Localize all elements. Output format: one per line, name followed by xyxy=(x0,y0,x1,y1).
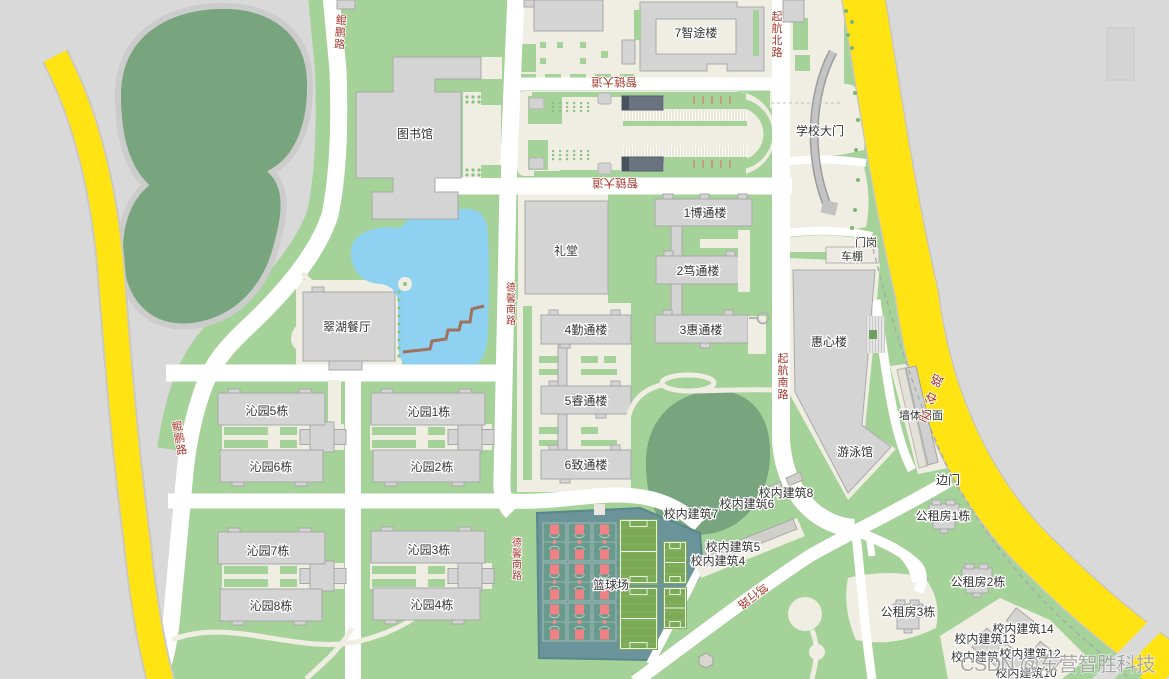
svg-text:北: 北 xyxy=(772,34,783,47)
svg-text:路: 路 xyxy=(512,569,522,582)
svg-text:惠心楼: 惠心楼 xyxy=(811,334,847,349)
svg-text:边门: 边门 xyxy=(936,472,960,487)
svg-text:智链大道: 智链大道 xyxy=(592,176,638,190)
svg-text:航: 航 xyxy=(778,363,789,377)
svg-text:图书馆: 图书馆 xyxy=(397,126,433,141)
svg-text:校内建筑5: 校内建筑5 xyxy=(706,539,761,554)
svg-text:鲲: 鲲 xyxy=(335,13,347,28)
svg-text:航: 航 xyxy=(772,21,783,35)
svg-text:沁园7栋: 沁园7栋 xyxy=(247,543,290,558)
svg-text:校内建筑13: 校内建筑13 xyxy=(954,631,1016,646)
svg-text:起: 起 xyxy=(778,352,789,365)
svg-text:沁园1栋: 沁园1栋 xyxy=(408,404,451,419)
svg-text:南: 南 xyxy=(778,376,789,389)
svg-text:沁园8栋: 沁园8栋 xyxy=(250,598,293,613)
svg-text:4勤通楼: 4勤通楼 xyxy=(565,322,608,337)
svg-text:沁园3栋: 沁园3栋 xyxy=(408,542,451,557)
svg-text:游泳馆: 游泳馆 xyxy=(837,444,873,459)
svg-text:公租房2栋: 公租房2栋 xyxy=(951,574,1006,589)
svg-text:1博通楼: 1博通楼 xyxy=(684,205,727,220)
svg-text:南: 南 xyxy=(506,303,516,316)
svg-text:篮球场: 篮球场 xyxy=(593,577,629,592)
svg-text:馨: 馨 xyxy=(512,547,522,560)
svg-text:7智途楼: 7智途楼 xyxy=(675,25,718,40)
svg-text:南: 南 xyxy=(512,558,522,571)
svg-text:翠湖餐厅: 翠湖餐厅 xyxy=(323,319,371,334)
svg-text:馨: 馨 xyxy=(506,292,516,305)
svg-text:鹏: 鹏 xyxy=(334,26,346,40)
svg-text:路: 路 xyxy=(334,38,346,52)
svg-text:路: 路 xyxy=(175,443,188,458)
svg-text:车棚: 车棚 xyxy=(841,249,863,263)
svg-text:沁园6栋: 沁园6栋 xyxy=(250,459,293,474)
svg-text:路: 路 xyxy=(772,46,783,59)
svg-text:智链大道: 智链大道 xyxy=(591,75,637,89)
svg-text:礼堂: 礼堂 xyxy=(554,243,578,258)
svg-text:沁园2栋: 沁园2栋 xyxy=(411,459,454,474)
svg-text:起: 起 xyxy=(772,10,783,23)
svg-text:沁园5栋: 沁园5栋 xyxy=(246,403,289,418)
svg-text:校内建筑7: 校内建筑7 xyxy=(664,506,719,521)
svg-text:学校大门: 学校大门 xyxy=(796,123,844,138)
svg-text:6致通楼: 6致通楼 xyxy=(565,457,608,472)
svg-text:德: 德 xyxy=(512,536,522,549)
svg-text:3惠通楼: 3惠通楼 xyxy=(680,322,723,337)
svg-text:公租房1栋: 公租房1栋 xyxy=(916,508,971,523)
svg-text:门岗: 门岗 xyxy=(855,235,877,249)
svg-text:德: 德 xyxy=(506,281,516,294)
svg-text:公租房3栋: 公租房3栋 xyxy=(881,604,936,619)
svg-text:CSDN @东营智胜科技: CSDN @东营智胜科技 xyxy=(960,653,1156,676)
svg-text:路: 路 xyxy=(778,388,789,401)
svg-text:校内建筑8: 校内建筑8 xyxy=(759,485,814,500)
svg-text:校内建筑4: 校内建筑4 xyxy=(691,553,746,568)
svg-text:沁园4栋: 沁园4栋 xyxy=(411,597,454,612)
svg-text:路: 路 xyxy=(506,314,516,327)
svg-text:2笃通楼: 2笃通楼 xyxy=(677,263,720,278)
svg-text:5睿通楼: 5睿通楼 xyxy=(565,393,608,408)
